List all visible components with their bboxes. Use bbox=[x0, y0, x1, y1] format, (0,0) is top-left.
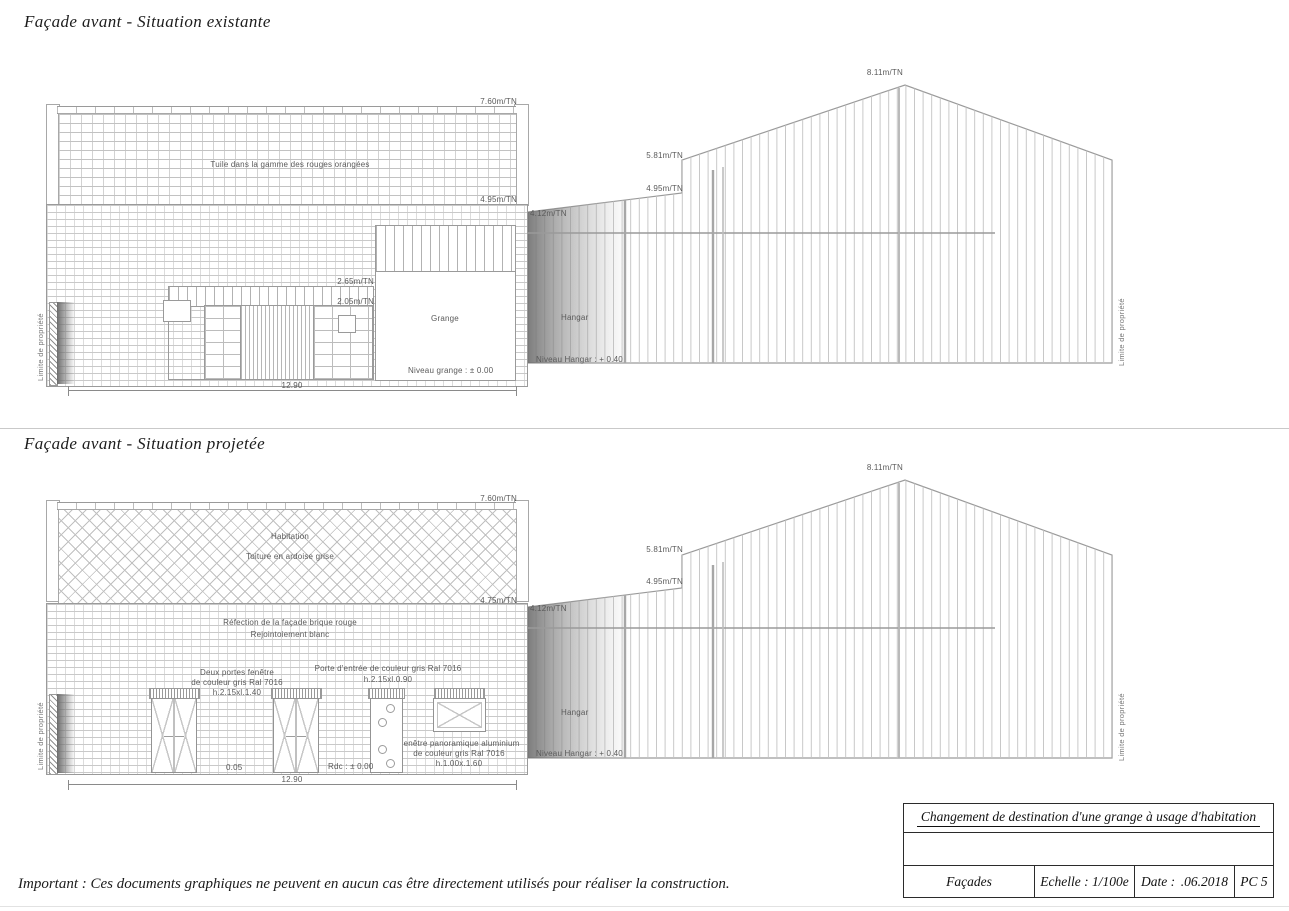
projected-entry-note1: Porte d'entrée de couleur gris Ral 7016 bbox=[315, 664, 462, 673]
projected-panoramic-window bbox=[433, 698, 486, 732]
section-divider bbox=[0, 428, 1289, 429]
projected-roof-note1: Habitation bbox=[271, 532, 309, 541]
date-cell: Date : .06.2018 bbox=[1135, 866, 1235, 897]
title-block: Changement de destination d'une grange à… bbox=[903, 803, 1274, 898]
projected-level-005: 0.05 bbox=[226, 763, 242, 772]
existing-hangar bbox=[527, 70, 1114, 365]
projected-hangar-level-495: 4.95m/TN bbox=[646, 577, 683, 586]
existing-grange-label: Grange bbox=[431, 314, 459, 323]
projected-hangar-level-581: 5.81m/TN bbox=[646, 545, 683, 554]
existing-hangar-level-495: 4.95m/TN bbox=[646, 184, 683, 193]
projected-window-note1: Fenêtre panoramique aluminium bbox=[399, 739, 520, 748]
projected-entry-note2: h.2.15xl.0.90 bbox=[364, 675, 412, 684]
existing-hangar-level-floor: Niveau Hangar : + 0.40 bbox=[536, 355, 623, 364]
existing-level-265: 2.65m/TN bbox=[337, 277, 374, 286]
projected-title: Façade avant - Situation projetée bbox=[24, 434, 265, 454]
date-label: Date : bbox=[1141, 874, 1175, 890]
date-value: .06.2018 bbox=[1181, 874, 1228, 890]
existing-grange-opening bbox=[375, 271, 516, 381]
existing-barn-door bbox=[240, 305, 315, 380]
projected-window-note3: h.1.00x.1.60 bbox=[436, 759, 482, 768]
projected-french-door-2 bbox=[273, 698, 319, 773]
projected-hangar bbox=[527, 465, 1114, 760]
projected-french-door-1 bbox=[151, 698, 197, 773]
existing-dim-value: 12.90 bbox=[281, 381, 302, 390]
door-leaf bbox=[173, 699, 196, 772]
projected-window-note2: de couleur gris Ral 7016 bbox=[413, 749, 505, 758]
title-block-project-row: Changement de destination d'une grange à… bbox=[904, 804, 1273, 833]
sheet-name: Façades bbox=[904, 866, 1035, 897]
projected-doors-note3: h.2.15xl.1.40 bbox=[213, 688, 261, 697]
projected-level-760: 7.60m/TN bbox=[480, 494, 517, 503]
projected-facade-note1: Réfection de la façade brique rouge bbox=[223, 618, 357, 627]
projected-hangar-level-floor: Niveau Hangar : + 0.40 bbox=[536, 749, 623, 758]
existing-hangar-label: Hangar bbox=[561, 313, 588, 322]
projected-roof-note2: Toiture en ardoise grise bbox=[246, 552, 334, 561]
existing-roof-note: Tuile dans la gamme des rouges orangées bbox=[210, 160, 369, 169]
existing-grange-level: Niveau grange : ± 0.00 bbox=[408, 366, 493, 375]
projected-level-rdc: Rdc : ± 0.00 bbox=[328, 762, 373, 771]
drawing-sheet: Façade avant - Situation existante Tuile… bbox=[0, 0, 1289, 911]
existing-window-left bbox=[163, 300, 191, 322]
projected-hangar-level-412: 4.12m/TN bbox=[530, 604, 567, 613]
projected-dim-value: 12.90 bbox=[281, 775, 302, 784]
existing-title: Façade avant - Situation existante bbox=[24, 12, 271, 32]
scale-value: Echelle : 1/100e bbox=[1035, 866, 1135, 897]
sheet-number: PC 5 bbox=[1235, 866, 1273, 897]
existing-dim-line bbox=[68, 390, 517, 391]
projected-property-limit-right: Limite de propriété bbox=[1117, 693, 1126, 761]
glazing-dot bbox=[386, 759, 395, 768]
existing-hangar-level-412: 4.12m/TN bbox=[530, 209, 567, 218]
projected-entry-door bbox=[370, 698, 403, 773]
projected-doors-note1: Deux portes fenêtre bbox=[200, 668, 274, 677]
projected-boundary-shadow bbox=[57, 694, 75, 773]
project-title: Changement de destination d'une grange à… bbox=[917, 809, 1260, 827]
door-leaf bbox=[152, 699, 173, 772]
glazing-dot bbox=[378, 718, 387, 727]
existing-hangar-level-811: 8.11m/TN bbox=[867, 68, 903, 77]
existing-level-205: 2.05m/TN bbox=[337, 297, 374, 306]
existing-property-limit-left: Limite de propriété bbox=[36, 313, 45, 381]
existing-hangar-level-581: 5.81m/TN bbox=[646, 151, 683, 160]
existing-level-760: 7.60m/TN bbox=[480, 97, 517, 106]
existing-window-right bbox=[338, 315, 356, 333]
glazing-dot bbox=[386, 704, 395, 713]
existing-boundary-shadow bbox=[57, 302, 75, 384]
page-bottom-edge bbox=[0, 906, 1289, 907]
door-leaf bbox=[295, 699, 318, 772]
door-leaf bbox=[274, 699, 295, 772]
title-block-info-row: Façades Echelle : 1/100e Date : .06.2018… bbox=[904, 866, 1273, 897]
title-block-empty-row bbox=[904, 834, 1273, 866]
glazing-dot bbox=[378, 745, 387, 754]
disclaimer-text: Important : Ces documents graphiques ne … bbox=[18, 876, 730, 893]
existing-grange-header bbox=[375, 225, 516, 273]
projected-hangar-level-811: 8.11m/TN bbox=[867, 463, 903, 472]
existing-property-limit-right: Limite de propriété bbox=[1117, 298, 1126, 366]
projected-hangar-label: Hangar bbox=[561, 708, 588, 717]
projected-facade-note2: Rejointoiement blanc bbox=[251, 630, 330, 639]
existing-door-jamb-left bbox=[204, 305, 242, 380]
existing-level-495: 4.95m/TN bbox=[480, 195, 517, 204]
projected-dim-line bbox=[68, 784, 517, 785]
window-glass bbox=[437, 702, 482, 728]
projected-property-limit-left: Limite de propriété bbox=[36, 702, 45, 770]
projected-doors-note2: de couleur gris Ral 7016 bbox=[191, 678, 283, 687]
